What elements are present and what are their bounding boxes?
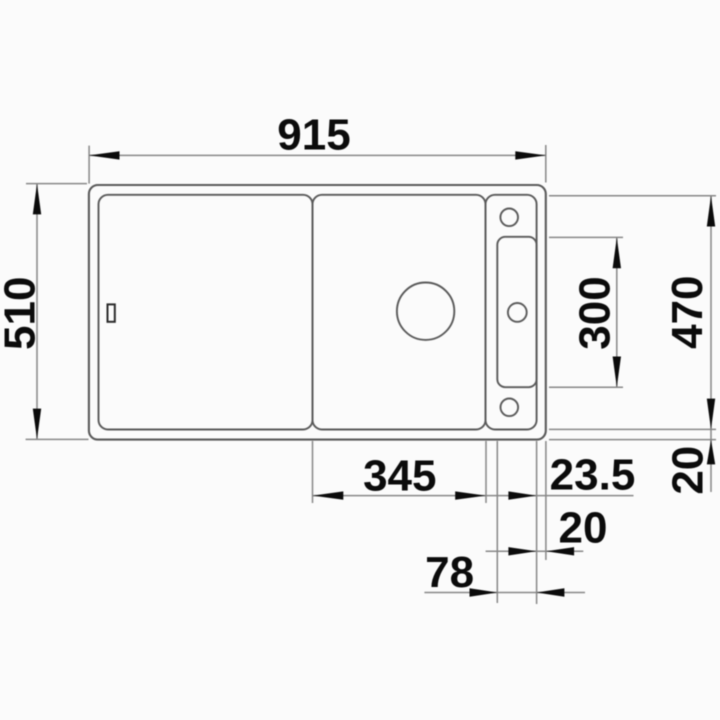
svg-text:915: 915 — [277, 111, 350, 160]
svg-text:345: 345 — [363, 452, 436, 501]
svg-text:78: 78 — [425, 548, 474, 597]
svg-text:23.5: 23.5 — [550, 451, 636, 500]
svg-text:510: 510 — [0, 277, 45, 350]
svg-text:300: 300 — [571, 276, 620, 349]
svg-text:20: 20 — [559, 504, 608, 553]
svg-text:470: 470 — [663, 275, 712, 348]
svg-text:20: 20 — [664, 446, 713, 495]
